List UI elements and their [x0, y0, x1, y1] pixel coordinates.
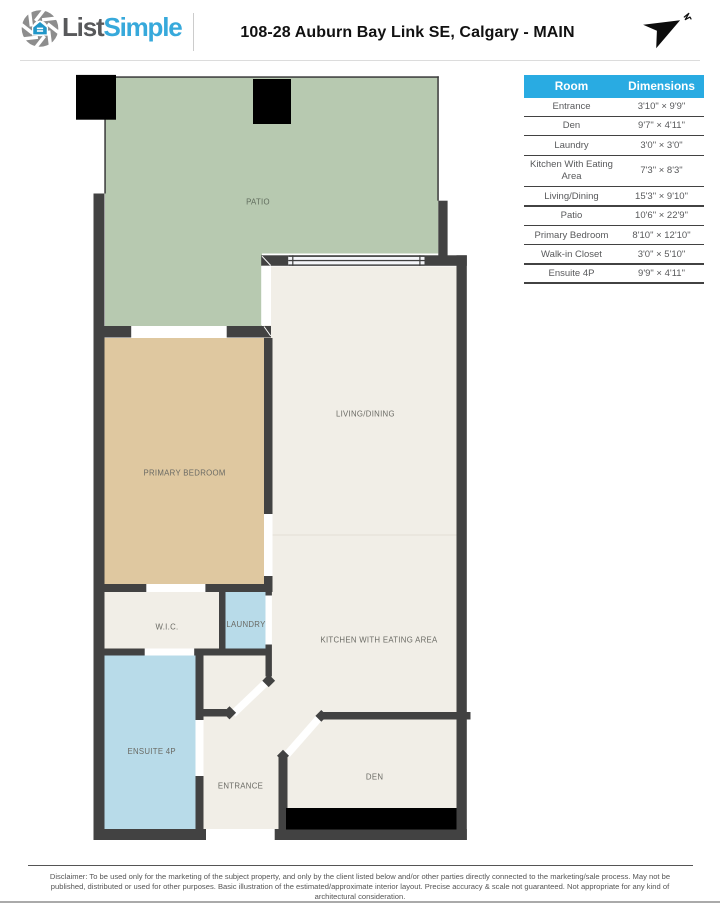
svg-text:ENTRANCE: ENTRANCE	[218, 781, 263, 790]
svg-text:LAUNDRY: LAUNDRY	[226, 620, 266, 629]
svg-text:KITCHEN WITH EATING AREA: KITCHEN WITH EATING AREA	[320, 636, 438, 645]
svg-text:W.I.C.: W.I.C.	[155, 622, 178, 631]
svg-text:PATIO: PATIO	[246, 198, 270, 207]
svg-text:LIVING/DINING: LIVING/DINING	[336, 410, 395, 419]
svg-text:PRIMARY BEDROOM: PRIMARY BEDROOM	[143, 469, 225, 478]
svg-text:DEN: DEN	[366, 773, 383, 782]
svg-text:ENSUITE 4P: ENSUITE 4P	[127, 747, 176, 756]
